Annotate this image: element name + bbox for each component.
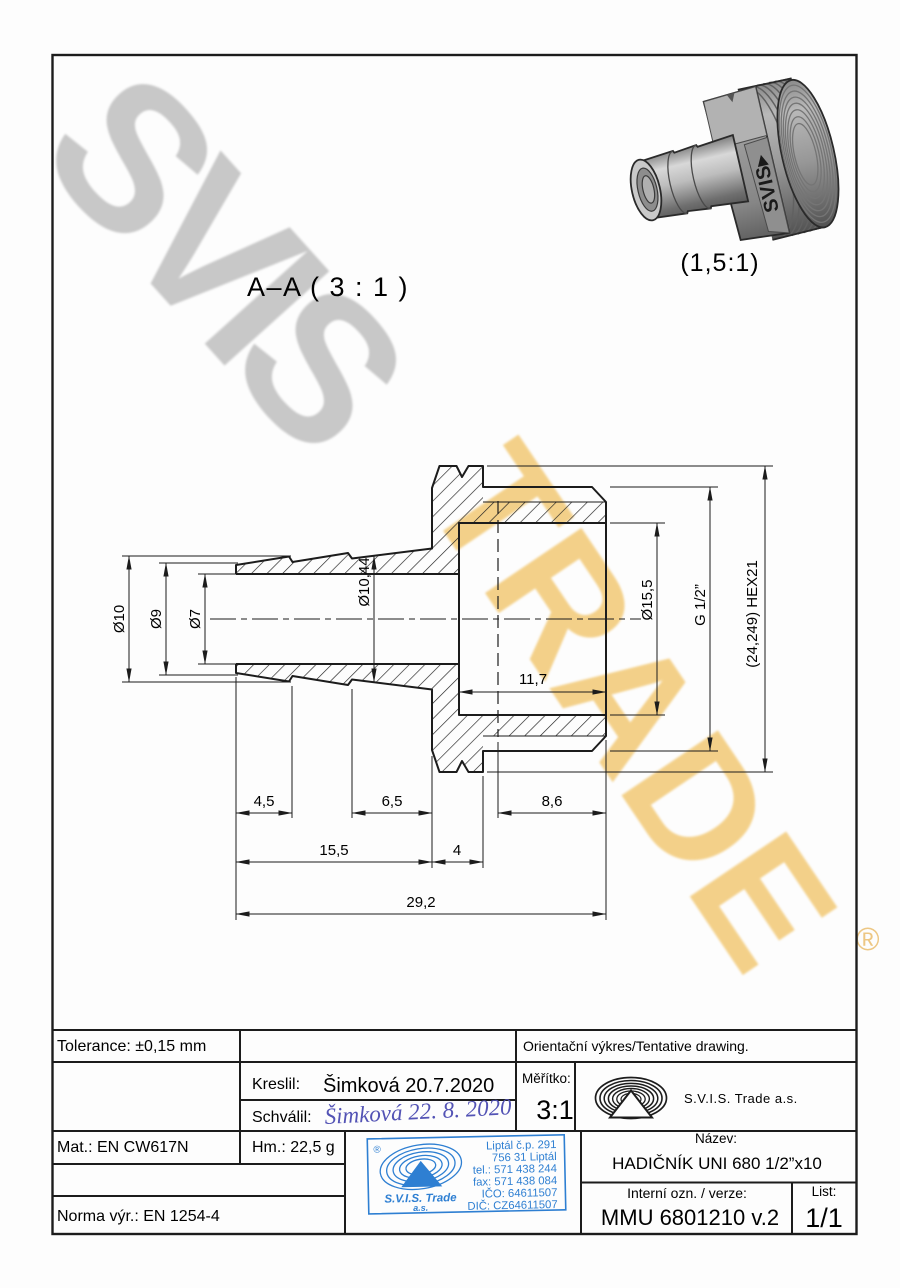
svg-text:Tolerance: ±0,15 mm: Tolerance: ±0,15 mm (57, 1038, 206, 1055)
svg-text:1/1: 1/1 (805, 1203, 843, 1233)
svg-text:(1,5:1): (1,5:1) (680, 249, 759, 277)
svg-text:Měřítko:: Měřítko: (522, 1071, 571, 1086)
svg-text:Orientační výkres/Tentative dr: Orientační výkres/Tentative drawing. (523, 1038, 749, 1054)
svg-text:8,6: 8,6 (542, 793, 563, 810)
svg-text:4,5: 4,5 (254, 793, 275, 810)
svg-text:Interní ozn. / verze:: Interní ozn. / verze: (627, 1185, 747, 1201)
svg-text:(24,249) HEX21: (24,249) HEX21 (744, 560, 761, 668)
svg-text:Ø10,44: Ø10,44 (356, 557, 373, 606)
svg-text:29,2: 29,2 (406, 894, 435, 911)
svg-text:11,7: 11,7 (519, 671, 547, 688)
svg-text:Norma výr.: EN 1254-4: Norma výr.: EN 1254-4 (57, 1208, 220, 1225)
svg-text:a.s.: a.s. (413, 1203, 428, 1213)
svg-text:MMU 6801210 v.2: MMU 6801210 v.2 (601, 1205, 779, 1230)
svg-text:Název:: Název: (695, 1131, 737, 1146)
svg-text:G 1/2”: G 1/2” (692, 584, 709, 626)
svg-text:Ø7: Ø7 (187, 609, 204, 629)
svg-text:Kreslil:: Kreslil: (252, 1076, 300, 1093)
svg-text:Hm.: 22,5 g: Hm.: 22,5 g (252, 1139, 335, 1156)
svg-text:Šimková 20.7.2020: Šimková 20.7.2020 (323, 1074, 494, 1097)
svg-text:S.V.I.S. Trade a.s.: S.V.I.S. Trade a.s. (684, 1091, 798, 1106)
svg-text:Ø10: Ø10 (111, 605, 128, 633)
svg-text:®: ® (856, 921, 880, 957)
svg-text:HADIČNÍK UNI 680 1/2”x10: HADIČNÍK UNI 680 1/2”x10 (612, 1154, 822, 1173)
svg-text:Mat.: EN CW617N: Mat.: EN CW617N (57, 1139, 189, 1156)
svg-text:3:1: 3:1 (536, 1095, 574, 1125)
svg-text:DIČ: CZ64611507: DIČ: CZ64611507 (467, 1198, 557, 1213)
svg-text:Schválil:: Schválil: (252, 1109, 312, 1126)
svg-text:6,5: 6,5 (382, 793, 403, 810)
svg-text:15,5: 15,5 (319, 842, 348, 859)
svg-text:Ø9: Ø9 (148, 609, 165, 629)
svg-text:Ø15,5: Ø15,5 (639, 580, 656, 621)
svg-text:List:: List: (812, 1184, 837, 1199)
svg-text:4: 4 (453, 842, 461, 859)
svg-text:®: ® (373, 1145, 381, 1156)
svg-text:A–A ( 3 : 1 ): A–A ( 3 : 1 ) (247, 272, 409, 302)
